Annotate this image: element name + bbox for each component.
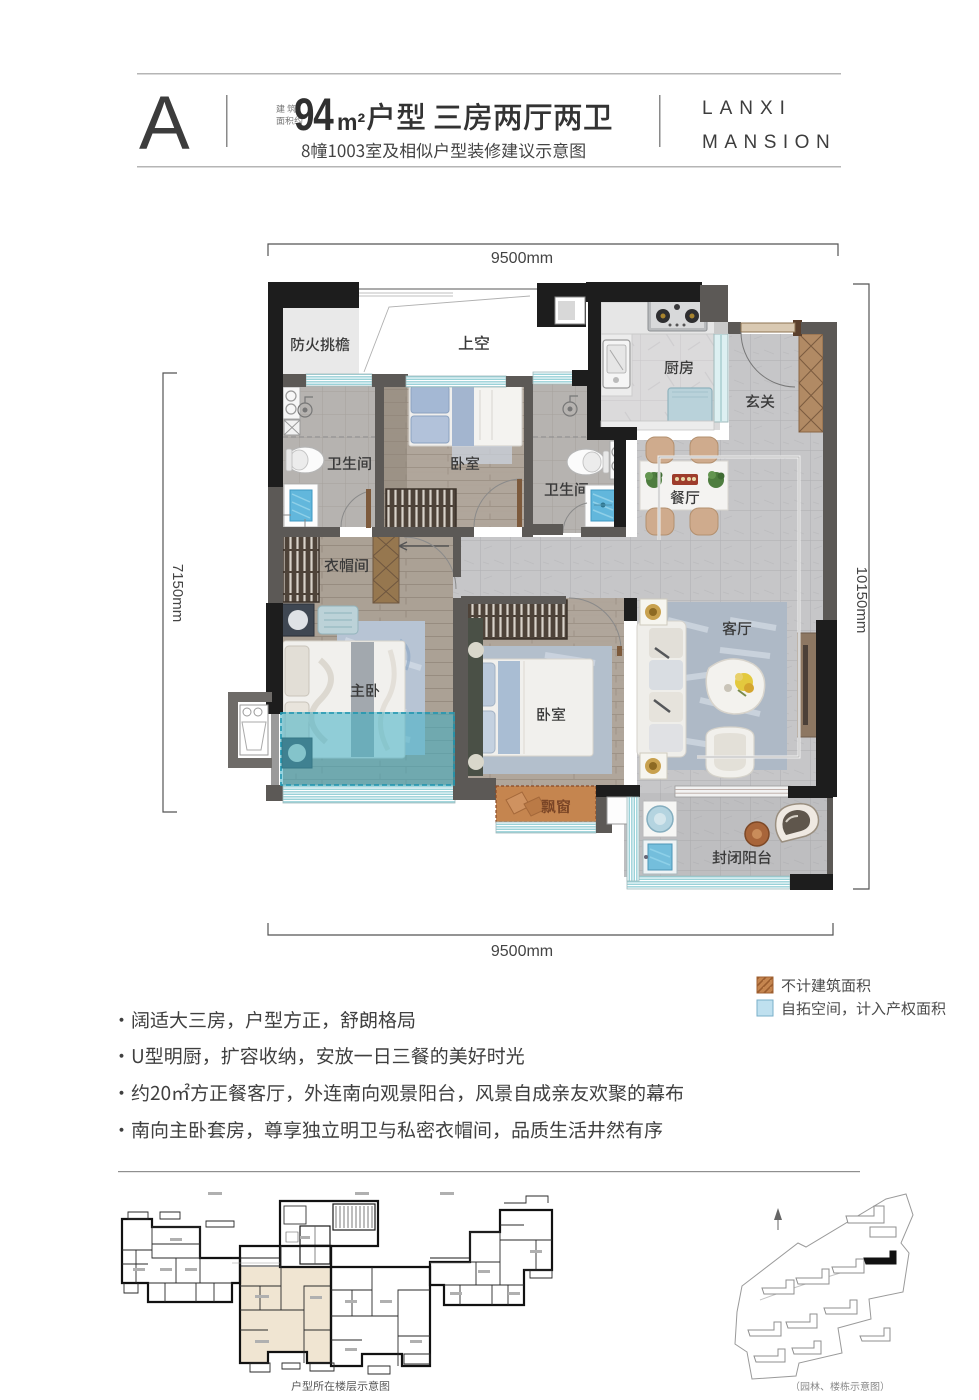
svg-text:9500mm: 9500mm — [491, 943, 553, 960]
svg-text:94: 94 — [294, 90, 334, 140]
svg-text:7150mm: 7150mm — [169, 564, 186, 622]
svg-text:MANSION: MANSION — [702, 132, 836, 153]
svg-text:9500mm: 9500mm — [491, 250, 553, 267]
svg-text:A: A — [139, 81, 190, 166]
svg-text:10150mm: 10150mm — [853, 567, 870, 634]
svg-text:m²: m² — [337, 109, 365, 135]
svg-text:LANXI: LANXI — [702, 98, 792, 119]
